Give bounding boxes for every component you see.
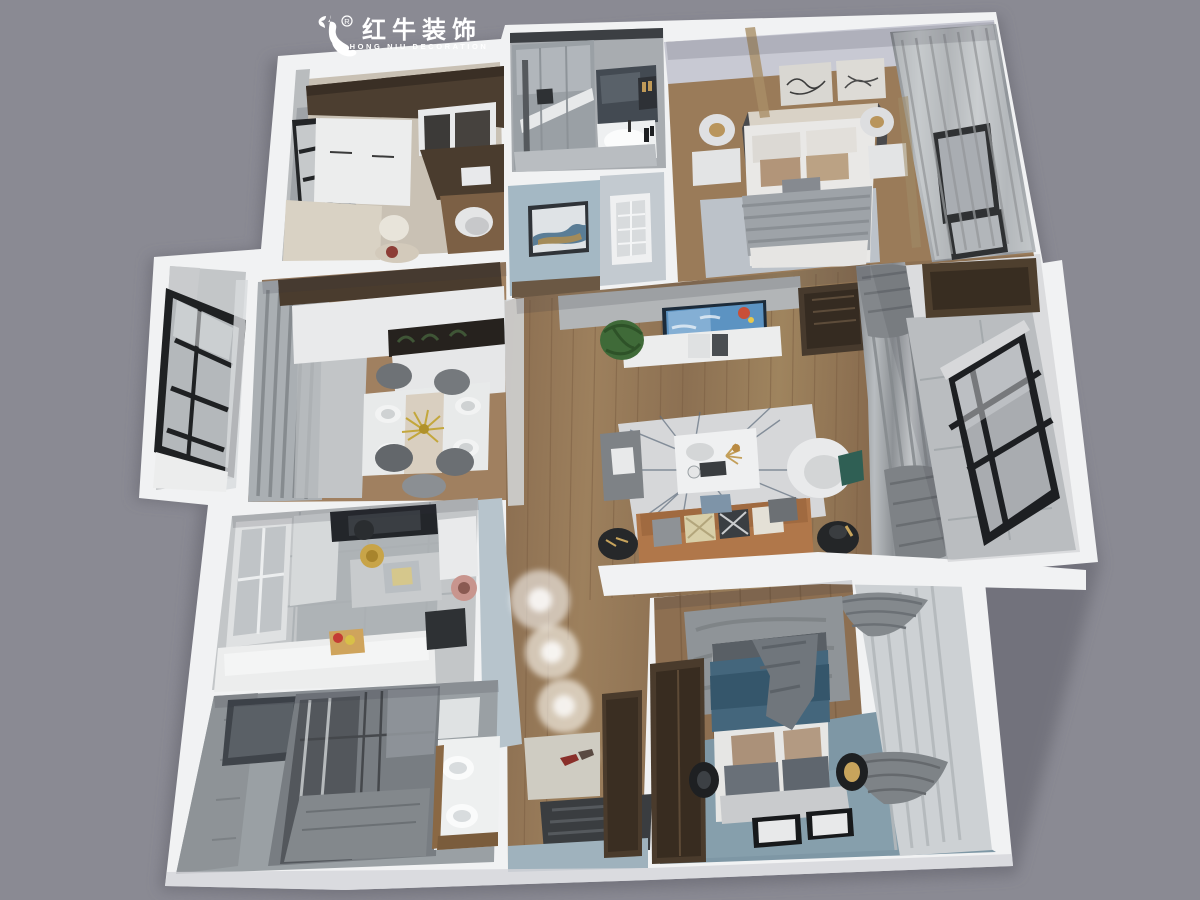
svg-text:HONG NIU DECORATION: HONG NIU DECORATION	[350, 42, 489, 51]
svg-text:R: R	[344, 17, 350, 26]
svg-text:红牛装饰: 红牛装饰	[362, 16, 482, 44]
